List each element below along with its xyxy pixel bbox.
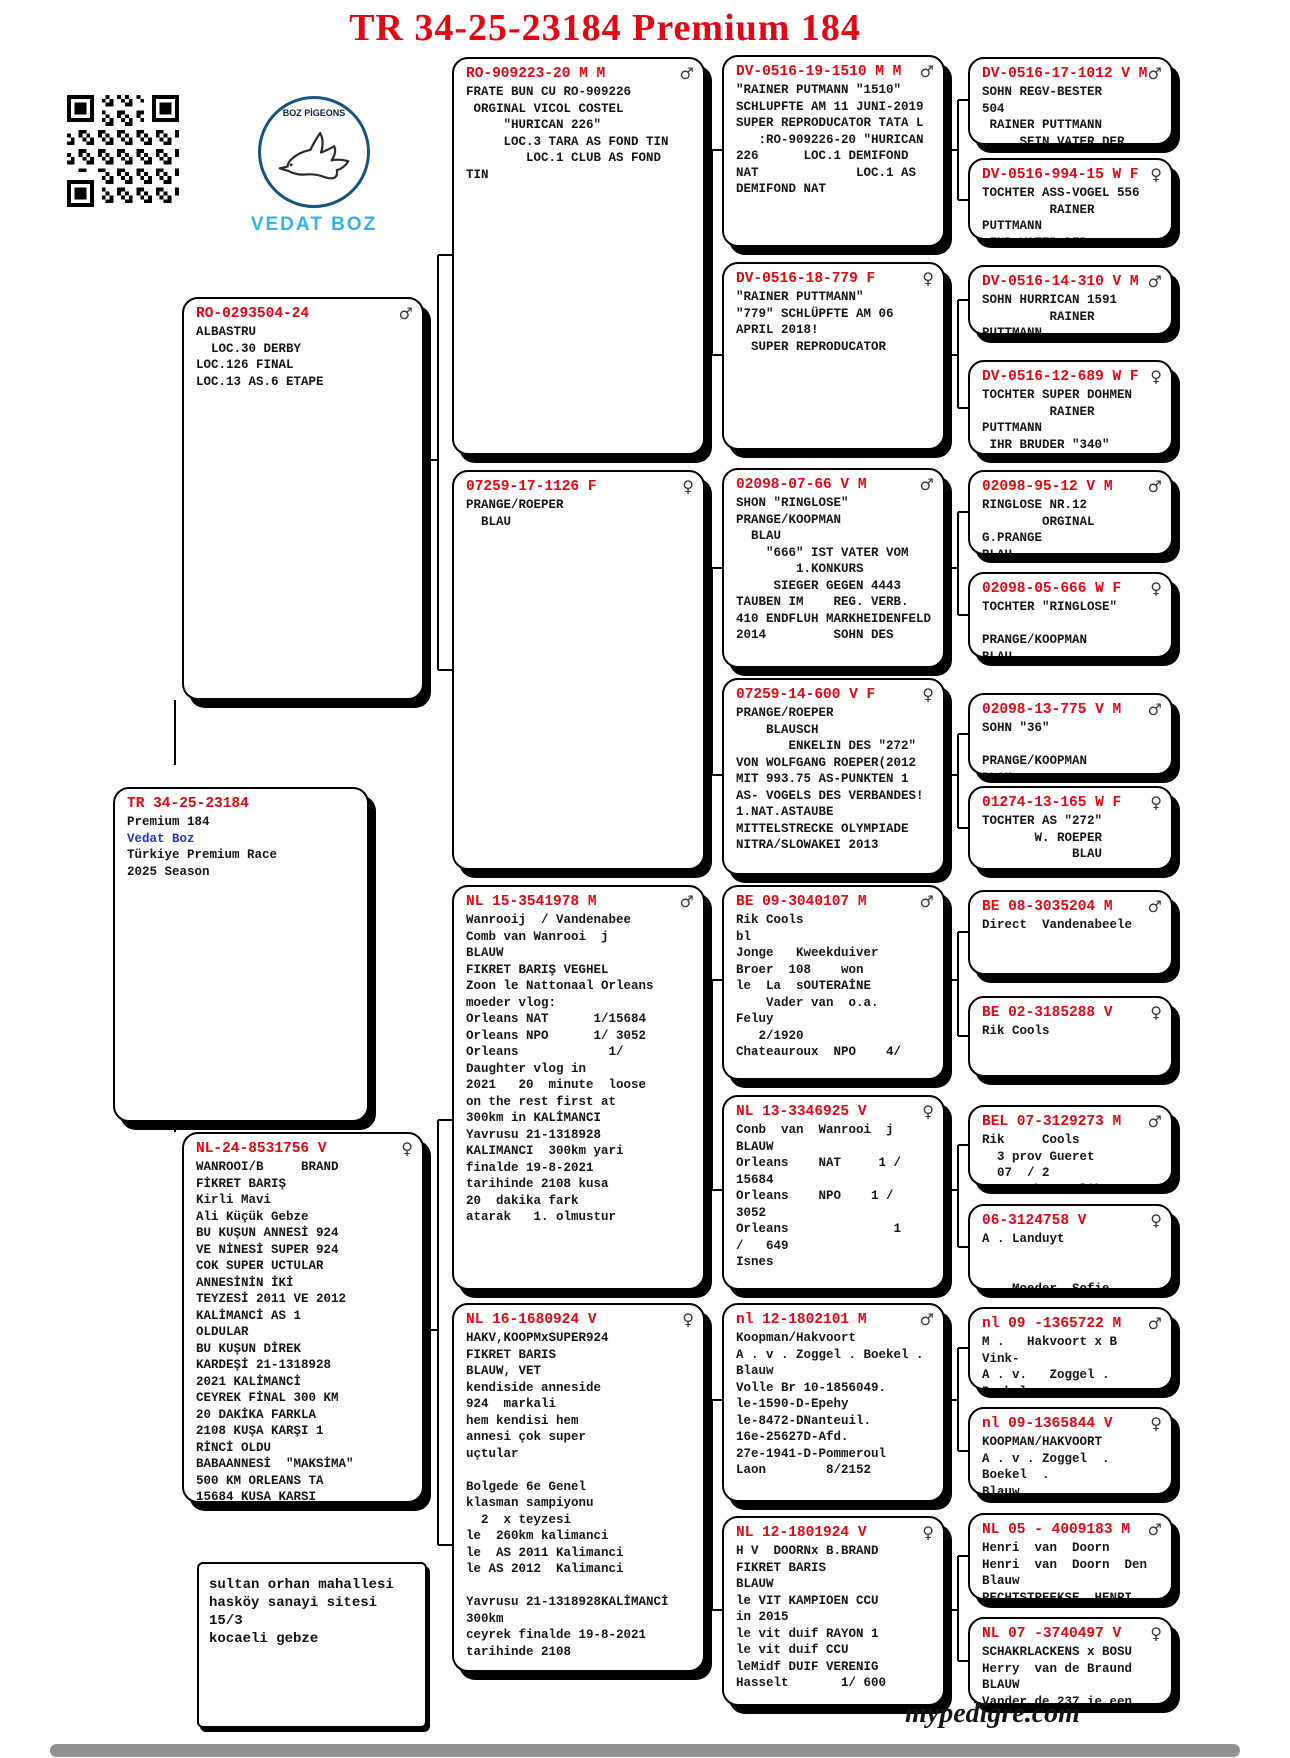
pedigree-text: Koopman/Hakvoort A . v . Zoggel . Boekel…: [736, 1330, 933, 1479]
sex-icon: ♂: [1148, 272, 1162, 291]
pedigree-text: Direct Vandenabeele: [982, 917, 1161, 934]
pedigree-text: SHON "RINGLOSE" PRANGE/KOOPMAN BLAU "666…: [736, 495, 933, 644]
pedigree-box-sddd: 01274-13-165 W F ♀ TOCHTER AS "272" W. R…: [968, 786, 1173, 870]
pedigree-box-dsss: BE 08-3035204 M ♂ Direct Vandenabeele: [968, 890, 1173, 975]
pedigree-box-ssd: DV-0516-18-779 F ♀ "RAINER PUTTMANN" "77…: [722, 262, 945, 450]
ring-number: DV-0516-17-1012 V M: [982, 65, 1161, 83]
ring-number: BEL 07-3129273 M: [982, 1113, 1161, 1131]
pedigree-text: SCHAKRLACKENS x BOSU Herry van de Braund…: [982, 1644, 1161, 1705]
pedigree-text: TOCHTER SUPER DOHMEN RAINER PUTTMANN IHR…: [982, 387, 1161, 453]
ring-number: DV-0516-14-310 V M: [982, 273, 1161, 291]
pedigree-box-ddsd: nl 09-1365844 V ♀ KOOPMAN/HAKVOORT A . v…: [968, 1407, 1173, 1495]
ring-number: RO-909223-20 M M: [466, 65, 693, 83]
pedigree-text: TOCHTER ASS-VOGEL 556 RAINER PUTTMANN IH…: [982, 185, 1161, 240]
pedigree-text: ALBASTRU LOC.30 DERBY LOC.126 FINAL LOC.…: [196, 324, 412, 390]
pedigree-text: RINGLOSE NR.12 ORGINAL G.PRANGE BLAU: [982, 497, 1161, 555]
pedigree-box-sss: DV-0516-19-1510 M M ♂ "RAINER PUTMANN "1…: [722, 55, 945, 247]
sex-icon: ♂: [1148, 897, 1162, 916]
pedigree-box-ss: RO-909223-20 M M ♂ FRATE BUN CU RO-90922…: [452, 57, 705, 455]
sex-icon: ♀: [1150, 579, 1162, 598]
ring-number: DV-0516-18-779 F: [736, 270, 933, 288]
pedigree-text: H V DOORNx B.BRAND FIKRET BARIS BLAUW le…: [736, 1543, 933, 1692]
pedigree-text: Rik Cools: [982, 1023, 1161, 1040]
pedigree-text: FRATE BUN CU RO-909226 ORGINAL VICOL COS…: [466, 84, 693, 183]
pedigree-box-sdss: 02098-95-12 V M ♂ RINGLOSE NR.12 ORGINAL…: [968, 470, 1173, 555]
sex-icon: ♀: [922, 269, 934, 288]
pedigree-box-sds: 02098-07-66 V M ♂ SHON "RINGLOSE" PRANGE…: [722, 468, 945, 668]
pedigree-box-sssd: DV-0516-994-15 W F ♀ TOCHTER ASS-VOGEL 5…: [968, 158, 1173, 240]
pedigree-box-dsds: BEL 07-3129273 M ♂ Rik Cools 3 prov Guer…: [968, 1105, 1173, 1186]
pedigree-box-sire: RO-0293504-24 ♂ ALBASTRU LOC.30 DERBY LO…: [182, 297, 424, 700]
pedigree-box-dsd: NL 13-3346925 V ♀ Conb van Wanrooi j BLA…: [722, 1095, 945, 1290]
pedigree-text: Henri van Doorn Henri van Doorn Den Blau…: [982, 1540, 1161, 1600]
pedigree-text: WANROOI/B BRAND FİKRET BARIŞ Kirli Mavi …: [196, 1159, 412, 1503]
bottom-scrollbar[interactable]: [50, 1744, 1240, 1757]
pedigree-text: Wanrooij / Vandenabee Comb van Wanrooi j…: [466, 912, 693, 1226]
pedigree-text: HAKV,KOOPMxSUPER924 FIKRET BARIS BLAUW, …: [466, 1330, 693, 1660]
pedigree-box-sd: 07259-17-1126 F ♀ PRANGE/ROEPER BLAU: [452, 470, 705, 870]
ring-number: 02098-13-775 V M: [982, 701, 1161, 719]
pedigree-text: Rik Cools bl Jonge Kweekduiver Broer 108…: [736, 912, 933, 1061]
pedigree-box-sdsd: 02098-05-666 W F ♀ TOCHTER "RINGLOSE" PR…: [968, 572, 1173, 658]
ring-number: nl 12-1802101 M: [736, 1311, 933, 1329]
pedigree-box-ssdd: DV-0516-12-689 W F ♀ TOCHTER SUPER DOHME…: [968, 360, 1173, 455]
pedigree-box-ds: NL 15-3541978 M ♂ Wanrooij / Vandenabee …: [452, 885, 705, 1290]
pedigree-text: KOOPMAN/HAKVOORT A . v . Zoggel . Boekel…: [982, 1434, 1161, 1495]
pedigree-box-sdds: 02098-13-775 V M ♂ SOHN "36" PRANGE/KOOP…: [968, 693, 1173, 775]
pedigree-box-ddd: NL 12-1801924 V ♀ H V DOORNx B.BRAND FIK…: [722, 1516, 945, 1706]
sex-icon: ♀: [682, 1310, 694, 1329]
sex-icon: ♀: [1150, 1211, 1162, 1230]
ring-number: RO-0293504-24: [196, 305, 412, 323]
ring-number: nl 09 -1365722 M: [982, 1315, 1161, 1333]
pedigree-text: "RAINER PUTTMANN" "779" SCHLÜPFTE AM 06 …: [736, 289, 933, 355]
ring-number: NL 13-3346925 V: [736, 1103, 933, 1121]
pedigree-box-dam: NL-24-8531756 V ♀ WANROOI/B BRAND FİKRET…: [182, 1132, 424, 1503]
sex-icon: ♀: [1150, 367, 1162, 386]
ring-number: NL 05 - 4009183 M: [982, 1521, 1161, 1539]
sex-icon: ♂: [680, 892, 694, 911]
sex-icon: ♀: [922, 685, 934, 704]
ring-number: BE 08-3035204 M: [982, 898, 1161, 916]
ring-number: 02098-07-66 V M: [736, 476, 933, 494]
pedigree-text: SOHN HURRICAN 1591 RAINER PUTTMANN ERL S…: [982, 292, 1161, 335]
pedigree-text: PRANGE/ROEPER BLAU: [466, 497, 693, 530]
ring-number: 06-3124758 V: [982, 1212, 1161, 1230]
pedigree-text: SOHN REGV-BESTER 504 RAINER PUTTMANN SEI…: [982, 84, 1161, 145]
ring-number: NL 12-1801924 V: [736, 1524, 933, 1542]
ring-number: 07259-17-1126 F: [466, 478, 693, 496]
ring-number: NL-24-8531756 V: [196, 1140, 412, 1158]
ring-number: BE 09-3040107 M: [736, 893, 933, 911]
season-label: 2025 Season: [127, 864, 357, 881]
ring-number: 01274-13-165 W F: [982, 794, 1161, 812]
pedigree-text: A . Landuyt Moeder Sofie: [982, 1231, 1161, 1290]
address-box: sultan orhan mahallesi hasköy sanayi sit…: [197, 1562, 427, 1728]
ring-number: NL 16-1680924 V: [466, 1311, 693, 1329]
sex-icon: ♀: [1150, 1624, 1162, 1643]
sex-icon: ♀: [922, 1523, 934, 1542]
pedigree-box-dss: BE 09-3040107 M ♂ Rik Cools bl Jonge Kwe…: [722, 885, 945, 1080]
sex-icon: ♂: [920, 62, 934, 81]
sex-icon: ♀: [922, 1102, 934, 1121]
sex-icon: ♂: [920, 1310, 934, 1329]
pedigree-text: TOCHTER AS "272" W. ROEPER BLAU: [982, 813, 1161, 863]
pedigree-text: Conb van Wanrooi j BLAUW Orleans NAT 1 /…: [736, 1122, 933, 1271]
ring-number: DV-0516-994-15 W F: [982, 166, 1161, 184]
sex-icon: ♂: [920, 475, 934, 494]
sex-icon: ♀: [1150, 793, 1162, 812]
bird-name: Premium 184: [127, 814, 357, 831]
sex-icon: ♂: [399, 304, 413, 323]
pedigree-text: PRANGE/ROEPER BLAUSCH ENKELIN DES "272" …: [736, 705, 933, 854]
ring-number: NL 15-3541978 M: [466, 893, 693, 911]
mypedigree-logo: mypedigre.com: [905, 1698, 1080, 1730]
ring-number: DV-0516-12-689 W F: [982, 368, 1161, 386]
pedigree-text: "RAINER PUTMANN "1510" SCHLUPFTE AM 11 J…: [736, 82, 933, 198]
sex-icon: ♀: [401, 1139, 413, 1158]
sex-icon: ♀: [1150, 1414, 1162, 1433]
pedigree-box-sdd: 07259-14-600 V F ♀ PRANGE/ROEPER BLAUSCH…: [722, 678, 945, 875]
sex-icon: ♀: [1150, 1003, 1162, 1022]
pedigree-page: TR 34-25-23184 Premium 184 BOZ PİGEONS V…: [0, 0, 1290, 1758]
pedigree-box-subject: TR 34-25-23184 Premium 184 Vedat Boz Tür…: [113, 787, 369, 1122]
sex-icon: ♂: [1148, 64, 1162, 83]
sex-icon: ♂: [1148, 700, 1162, 719]
pedigree-box-ddss: nl 09 -1365722 M ♂ M . Hakvoort x B Vink…: [968, 1307, 1173, 1390]
pedigree-box-dsdd: 06-3124758 V ♀ A . Landuyt Moeder Sofie: [968, 1204, 1173, 1290]
pedigree-box-dssd: BE 02-3185288 V ♀ Rik Cools: [968, 996, 1173, 1077]
pedigree-box-dds: nl 12-1802101 M ♂ Koopman/Hakvoort A . v…: [722, 1303, 945, 1502]
pedigree-text: SOHN "36" PRANGE/KOOPMAN BLAU: [982, 720, 1161, 775]
ring-number: BE 02-3185288 V: [982, 1004, 1161, 1022]
ring-number: DV-0516-19-1510 M M: [736, 63, 933, 81]
sex-icon: ♂: [1148, 1314, 1162, 1333]
ring-number: 07259-14-600 V F: [736, 686, 933, 704]
sex-icon: ♂: [1148, 1112, 1162, 1131]
ring-number: 02098-95-12 V M: [982, 478, 1161, 496]
owner-name: Vedat Boz: [127, 831, 357, 848]
pedigree-box-ssds: DV-0516-14-310 V M ♂ SOHN HURRICAN 1591 …: [968, 265, 1173, 335]
ring-number: TR 34-25-23184: [127, 795, 357, 813]
race-name: Türkiye Premium Race: [127, 847, 357, 864]
ring-number: nl 09-1365844 V: [982, 1415, 1161, 1433]
sex-icon: ♀: [682, 477, 694, 496]
sex-icon: ♀: [1150, 165, 1162, 184]
sex-icon: ♂: [1148, 1520, 1162, 1539]
sex-icon: ♂: [680, 64, 694, 83]
pedigree-box-dddd: NL 07 -3740497 V ♀ SCHAKRLACKENS x BOSU …: [968, 1617, 1173, 1705]
pedigree-text: Rik Cools 3 prov Gueret 07 / 2 Ze Schone…: [982, 1132, 1161, 1186]
sex-icon: ♂: [1148, 477, 1162, 496]
pedigree-text: M . Hakvoort x B Vink- A . v. Zoggel . B…: [982, 1334, 1161, 1390]
pedigree-box-dd: NL 16-1680924 V ♀ HAKV,KOOPMxSUPER924 FI…: [452, 1303, 705, 1672]
pedigree-box-ddds: NL 05 - 4009183 M ♂ Henri van Doorn Henr…: [968, 1513, 1173, 1600]
pedigree-box-ssss: DV-0516-17-1012 V M ♂ SOHN REGV-BESTER 5…: [968, 57, 1173, 145]
ring-number: NL 07 -3740497 V: [982, 1625, 1161, 1643]
sex-icon: ♂: [920, 892, 934, 911]
pedigree-text: TOCHTER "RINGLOSE" PRANGE/KOOPMAN BLAU: [982, 599, 1161, 658]
ring-number: 02098-05-666 W F: [982, 580, 1161, 598]
